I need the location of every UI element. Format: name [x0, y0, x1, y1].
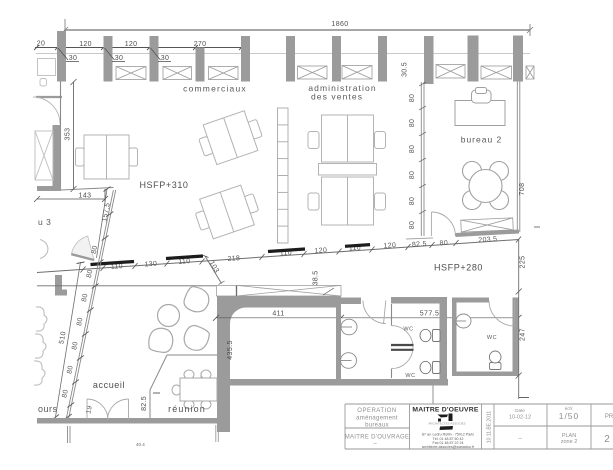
svg-text:2: 2: [604, 434, 610, 445]
svg-text:architecte-associes@wanadoo.fr: architecte-associes@wanadoo.fr: [422, 445, 475, 449]
svg-text:30: 30: [69, 55, 77, 62]
svg-text:82.5: 82.5: [412, 241, 427, 249]
svg-text:270: 270: [194, 41, 207, 48]
svg-text:des ventes: des ventes: [311, 92, 363, 102]
svg-text:120: 120: [125, 41, 138, 48]
svg-text:577.5: 577.5: [420, 311, 440, 318]
svg-text:aménagement: aménagement: [356, 416, 398, 422]
svg-text:120: 120: [383, 242, 396, 250]
svg-text:30.5: 30.5: [402, 62, 409, 77]
svg-text:247: 247: [520, 328, 527, 341]
svg-text:Date: Date: [515, 408, 525, 413]
svg-text:80: 80: [409, 197, 416, 205]
svg-text:u 3: u 3: [38, 217, 51, 227]
svg-text:WC: WC: [403, 327, 413, 333]
svg-text:435.5: 435.5: [227, 340, 234, 360]
svg-text:353: 353: [65, 128, 72, 141]
svg-text:203.5: 203.5: [478, 236, 498, 244]
svg-text:bureaux: bureaux: [365, 423, 389, 429]
svg-text:143: 143: [79, 193, 92, 200]
svg-text:10-02-12: 10-02-12: [509, 415, 531, 421]
svg-text:80: 80: [409, 171, 416, 179]
svg-text:20: 20: [37, 41, 45, 48]
svg-text:80: 80: [409, 145, 416, 153]
svg-text:130: 130: [144, 261, 157, 269]
svg-text:HSFP+280: HSFP+280: [434, 263, 483, 273]
svg-text:ARCHITECTES ASSOCIES: ARCHITECTES ASSOCIES: [428, 422, 465, 426]
svg-text:80: 80: [439, 240, 448, 248]
svg-text:38.5: 38.5: [313, 271, 320, 286]
svg-text:80: 80: [409, 94, 416, 102]
svg-text:120: 120: [314, 247, 327, 255]
svg-text:87 av. Ledru Rollin - 75012 Pa: 87 av. Ledru Rollin - 75012 Paris: [422, 433, 474, 437]
svg-text:WC: WC: [487, 335, 497, 341]
svg-text:218: 218: [227, 255, 240, 263]
svg-text:708: 708: [519, 183, 526, 196]
svg-text:110: 110: [178, 258, 191, 266]
svg-text:10.11.BE.2011: 10.11.BE.2011: [487, 411, 493, 444]
svg-text:30: 30: [161, 55, 169, 62]
svg-text:40.4: 40.4: [136, 442, 145, 447]
svg-text:82.5: 82.5: [141, 396, 148, 411]
svg-text:zone 2: zone 2: [561, 439, 578, 445]
svg-text:225: 225: [520, 256, 527, 269]
svg-text:411: 411: [272, 311, 284, 318]
svg-text:MAITRE D'OUVRAGE: MAITRE D'OUVRAGE: [345, 435, 410, 441]
svg-text:commerciaux: commerciaux: [183, 84, 247, 94]
svg-text:1860: 1860: [331, 21, 348, 28]
svg-text:réunion: réunion: [168, 404, 206, 414]
svg-text:80: 80: [409, 119, 416, 127]
svg-text:1/50: 1/50: [559, 411, 580, 421]
svg-text:bureau 2: bureau 2: [461, 135, 503, 145]
svg-text:80: 80: [409, 221, 416, 229]
svg-text:30: 30: [115, 55, 123, 62]
svg-text:WC: WC: [405, 373, 415, 379]
svg-text:120: 120: [79, 41, 92, 48]
svg-text:PR: PR: [605, 414, 613, 420]
svg-text:HSFP+310: HSFP+310: [139, 180, 188, 190]
svg-text:OPERATION: OPERATION: [357, 408, 396, 414]
svg-text:accueil: accueil: [93, 380, 125, 390]
svg-text:MAITRE D'OEUVRE: MAITRE D'OEUVRE: [412, 407, 478, 414]
svg-text:ours: ours: [38, 404, 58, 414]
